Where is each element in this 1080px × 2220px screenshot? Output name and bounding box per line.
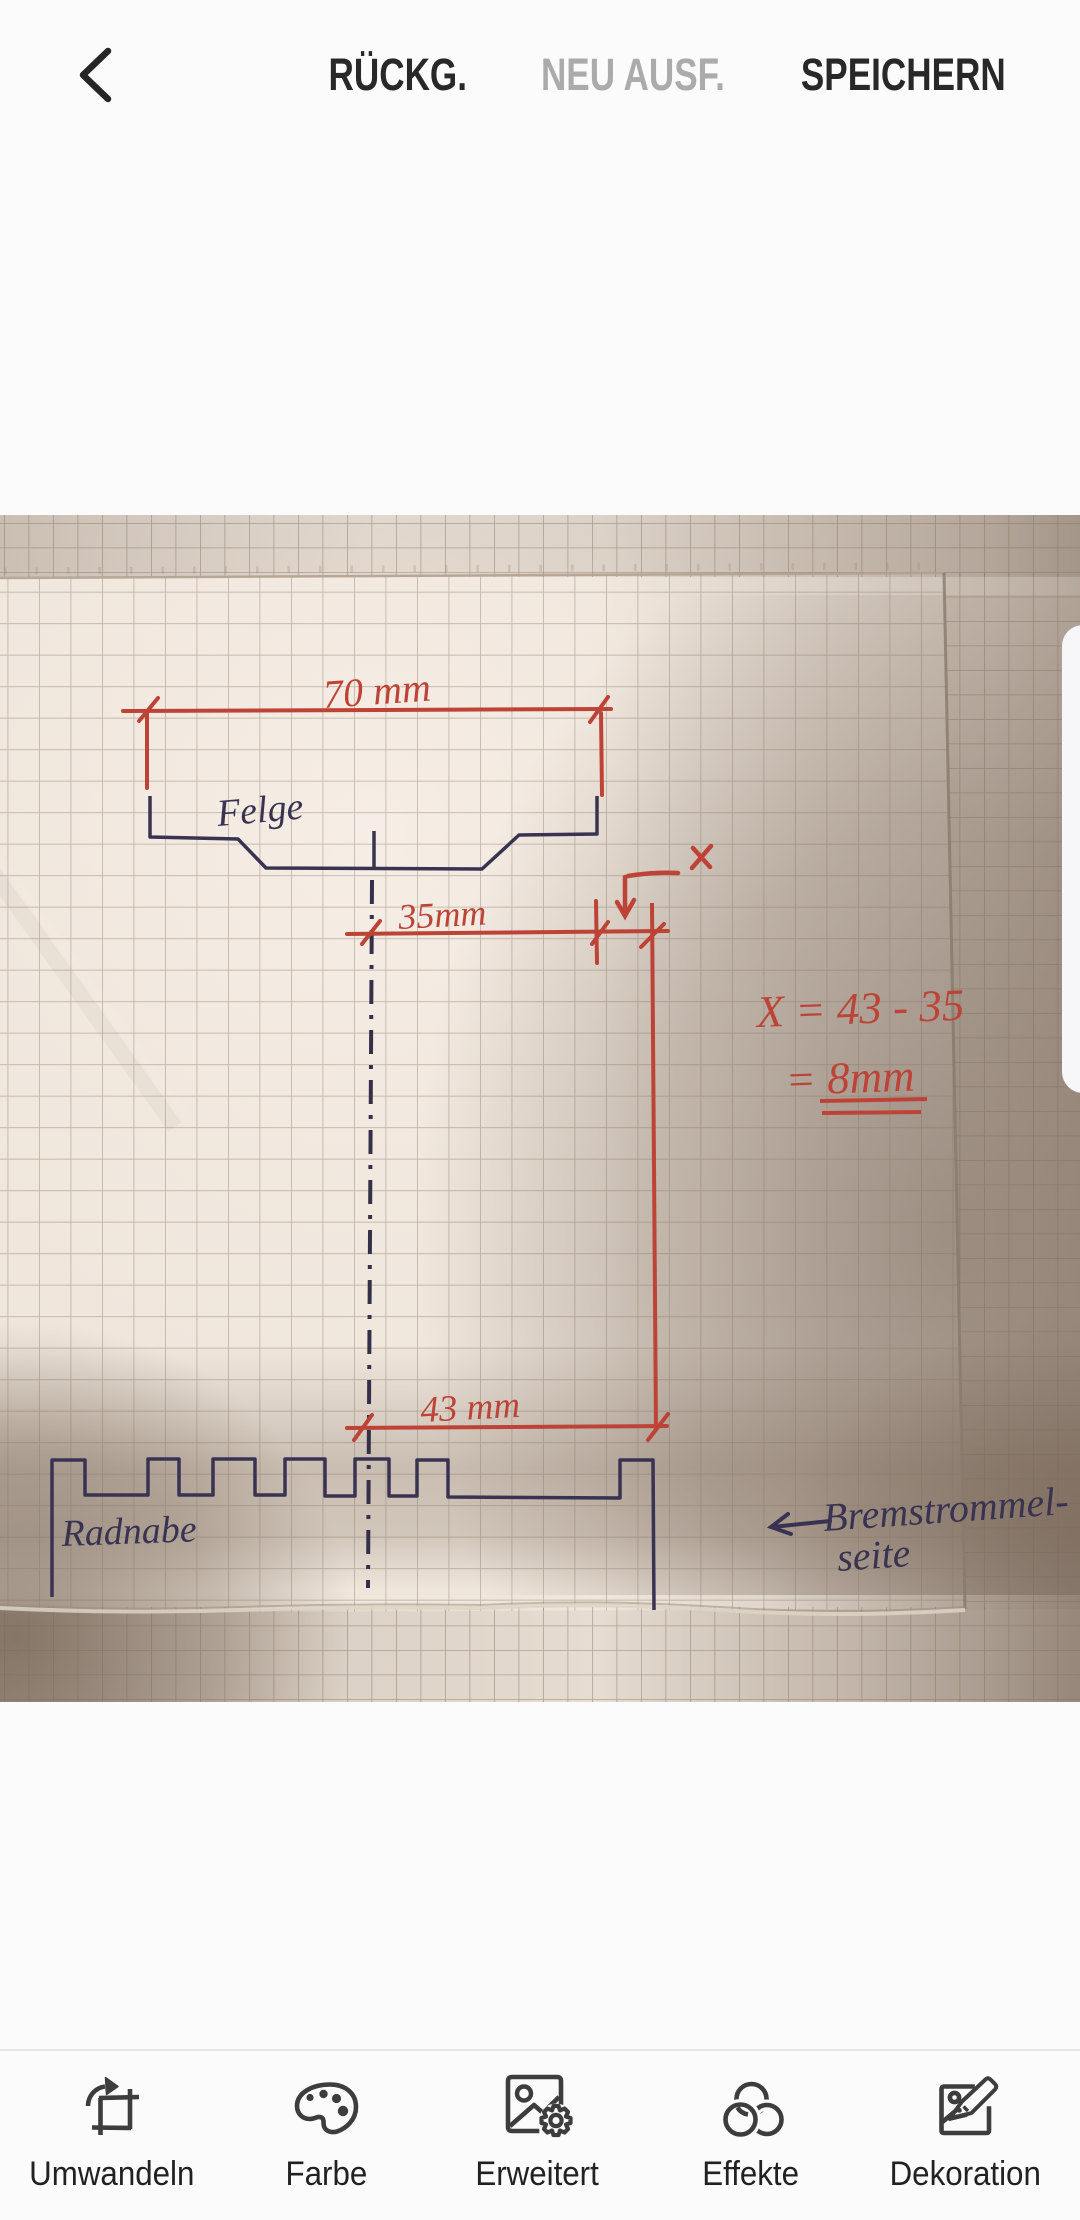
svg-text:70 mm: 70 mm [321, 665, 432, 717]
svg-text:= 8mm: = 8mm [785, 1051, 916, 1105]
svg-text:35mm: 35mm [396, 892, 487, 937]
svg-text:seite: seite [835, 1530, 911, 1580]
svg-text:Felge: Felge [214, 786, 305, 835]
svg-text:X = 43 - 35: X = 43 - 35 [754, 980, 965, 1037]
svg-text:43 mm: 43 mm [419, 1385, 521, 1431]
svg-text:Radnabe: Radnabe [60, 1508, 198, 1555]
